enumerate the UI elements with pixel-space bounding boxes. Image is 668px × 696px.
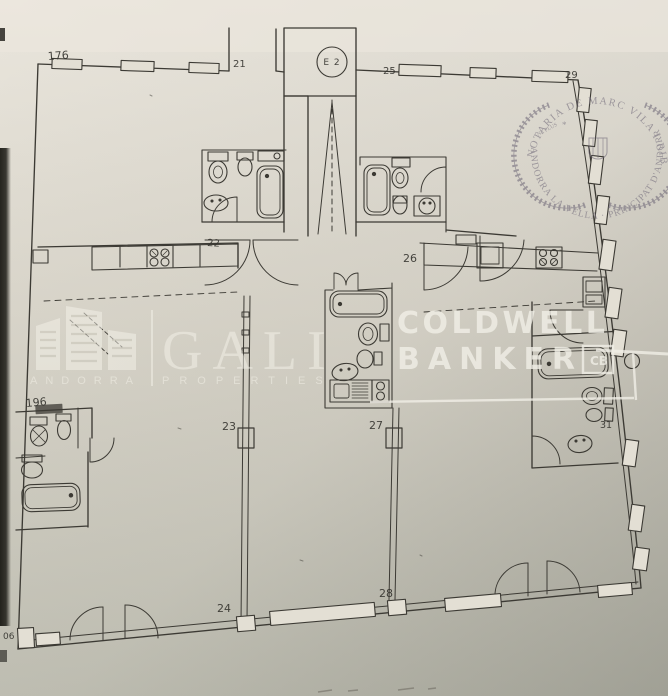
room-label-21: 21 [233,59,246,70]
gali-tagline-right: PROPERTIES [162,375,333,387]
room-label-26: 26 [403,252,417,265]
room-label-06: 06 [3,632,15,642]
room-label-29: 29 [565,70,578,81]
room-label-176: 176 [47,49,69,63]
coldwell-line1: COLDWELL [397,306,608,341]
room-label-22: 22 [207,238,220,250]
stamp-star: * [562,120,567,130]
gali-name: GALI [162,320,336,382]
gali-tagline-left: ANDORRA [30,375,141,387]
scanned-floorplan-photo: 176 21 25 29 22 26 196 23 27 31 24 28 06… [0,0,668,696]
coldwell-line2: BANKER [397,342,583,377]
room-label-24: 24 [217,602,231,615]
room-label-25: 25 [383,66,396,77]
room-label-27: 27 [369,419,383,432]
room-label-196: 196 [25,395,47,410]
coldwell-box-glyph: CB [590,354,608,368]
room-label-23: 23 [222,420,236,433]
room-label-31: 31 [600,420,612,431]
elevator-label: E 2 [323,58,340,68]
room-label-28: 28 [379,587,393,600]
